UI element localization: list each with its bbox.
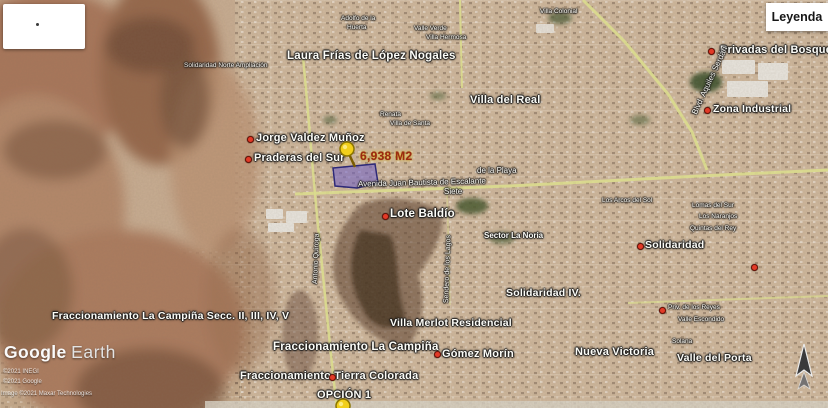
map-label-quintas-del-rey: Quintas del Rey (690, 225, 736, 232)
google-earth-viewport: Laura Frías de López Nogales Villa del R… (0, 0, 828, 408)
placemark-label-solidaridad[interactable]: Solidaridad (645, 239, 704, 251)
map-label-priv-reyes: Priv. de los Reyes (668, 304, 720, 311)
map-label-adolfo-2: Huerta (347, 24, 367, 31)
map-label-villa-del-real: Villa del Real (470, 94, 540, 106)
blank-info-card (3, 4, 85, 49)
card-marker-dot (36, 23, 39, 26)
legend-title: Leyenda (772, 10, 823, 24)
map-label-villa-hermosa: Villa Hermosa (426, 34, 466, 41)
yellow-pushpin-icon[interactable] (333, 397, 359, 408)
legend-panel: Leyenda (766, 3, 828, 31)
north-arrow-icon (788, 342, 820, 394)
red-marker-dot[interactable] (708, 48, 715, 55)
red-marker-dot[interactable] (704, 107, 711, 114)
earth-logo-text: Earth (71, 342, 116, 362)
map-label-renata: Renata (380, 111, 401, 118)
map-label-nueva-victoria: Nueva Victoria (575, 346, 654, 358)
red-marker-dot[interactable] (659, 307, 666, 314)
red-marker-dot[interactable] (382, 213, 389, 220)
site-area-label: 6,938 M2 (360, 149, 412, 163)
road-label-de-la-playa: de la Playa (477, 166, 517, 175)
map-label-los-naranjos: Los Naranjos (699, 213, 737, 220)
map-label-adolfo-1: Adolfo de la (341, 15, 375, 22)
map-label-laura-frias: Laura Frías de López Nogales (287, 50, 456, 62)
map-label-valle-del-porta: Valle del Porta (677, 352, 752, 364)
map-label-solidaridad-iv: Solidaridad IV. (506, 287, 581, 299)
red-marker-dot[interactable] (637, 243, 644, 250)
google-logo-text: Google (4, 342, 67, 362)
google-earth-watermark: Google Earth (4, 342, 116, 363)
map-label-solana: Solana (672, 338, 692, 345)
map-label-lomas-del-sur: Lomas del Sur (692, 202, 734, 209)
map-label-la-campina: Fraccionamiento La Campiña (273, 341, 439, 353)
red-marker-dot[interactable] (245, 156, 252, 163)
map-label-ampliacion-norte: Solidaridad Norte Ampliación (184, 62, 267, 69)
map-label-valle-verde: Valle Verde (414, 25, 447, 32)
credit-google: ©2021 Google (3, 379, 42, 385)
map-label-la-campina-secc: Fraccionamiento La Campiña Secc. II, III… (52, 310, 289, 322)
placemark-label-zona-industrial[interactable]: Zona Industrial (713, 103, 791, 115)
credit-maxar: Image ©2021 Maxar Technologies (1, 391, 92, 397)
map-label-valle-escondido: Valle Escondido (678, 316, 724, 323)
map-label-villa-colonial: Villa Colonial (540, 8, 577, 15)
placemark-label-gomez-morin[interactable]: Gómez Morín (442, 348, 514, 360)
placemark-label-privadas-del-bosque[interactable]: Privadas del Bosque (720, 44, 828, 56)
red-marker-dot[interactable] (247, 136, 254, 143)
red-marker-dot[interactable] (751, 264, 758, 271)
map-label-arcos-del-sol: Los Arcos del Sol (602, 197, 652, 204)
placemark-label-praderas-del-sur[interactable]: Praderas del Sur (254, 152, 345, 164)
red-marker-dot[interactable] (434, 351, 441, 358)
placemark-label-lote-baldio[interactable]: Lote Baldío (390, 208, 455, 220)
map-label-sector-la-noria: Sector La Noria (484, 231, 543, 240)
map-label-villa-de-santa: Villa de Santa (390, 120, 430, 127)
red-marker-dot[interactable] (329, 374, 336, 381)
yellow-pushpin-icon[interactable] (337, 140, 363, 170)
map-label-villa-merlot: Villa Merlot Residencial (390, 317, 512, 329)
credit-inegi: ©2021 INEGI (3, 369, 39, 375)
road-label-siete: Siete (444, 187, 462, 196)
